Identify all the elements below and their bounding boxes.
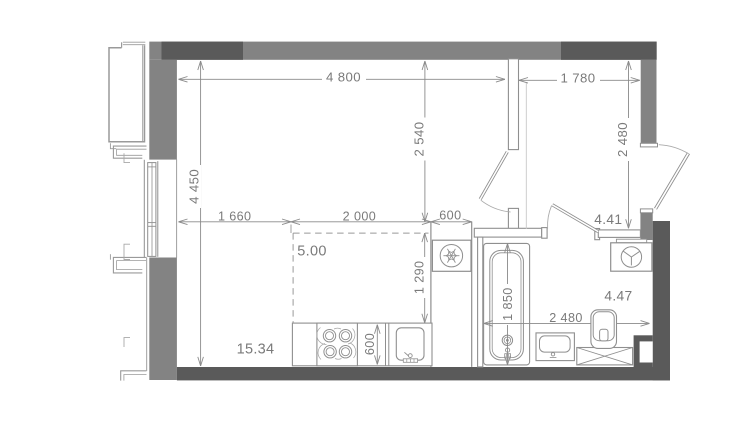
svg-text:1 780: 1 780 bbox=[560, 70, 595, 85]
svg-text:2 480: 2 480 bbox=[615, 122, 630, 157]
svg-text:2 000: 2 000 bbox=[343, 210, 377, 224]
svg-text:1 290: 1 290 bbox=[412, 261, 426, 295]
svg-text:15.34: 15.34 bbox=[237, 342, 275, 358]
svg-text:4 450: 4 450 bbox=[187, 169, 202, 204]
svg-text:4.47: 4.47 bbox=[604, 289, 632, 304]
svg-text:2 480: 2 480 bbox=[549, 311, 583, 325]
svg-text:5.00: 5.00 bbox=[297, 244, 326, 260]
svg-text:4 800: 4 800 bbox=[326, 70, 361, 85]
svg-text:2 540: 2 540 bbox=[412, 121, 427, 156]
svg-text:1 660: 1 660 bbox=[218, 210, 252, 224]
svg-text:4.41: 4.41 bbox=[594, 212, 622, 227]
svg-text:600: 600 bbox=[439, 209, 461, 223]
svg-text:1 850: 1 850 bbox=[501, 287, 515, 321]
svg-text:600: 600 bbox=[363, 333, 377, 355]
